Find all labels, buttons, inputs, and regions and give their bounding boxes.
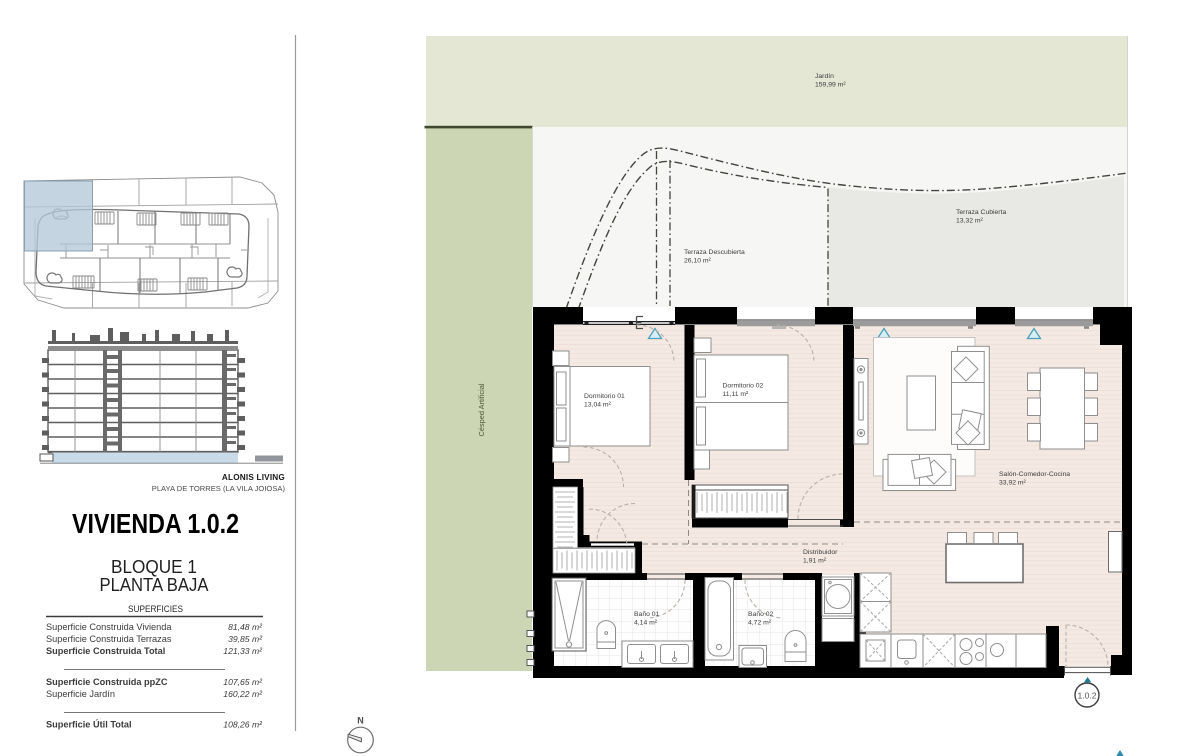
svg-text:Superficie Construida Terrazas: Superficie Construida Terrazas: [46, 634, 172, 644]
svg-text:Césped Artificial: Césped Artificial: [477, 383, 486, 436]
svg-text:26,10 m²: 26,10 m²: [684, 258, 712, 265]
svg-text:160,22 m²: 160,22 m²: [223, 689, 263, 699]
svg-text:Superficie Jardín: Superficie Jardín: [46, 689, 115, 699]
svg-text:Superficie Útil Total: Superficie Útil Total: [46, 719, 132, 730]
svg-text:Superficie Construida ppZC: Superficie Construida ppZC: [46, 677, 168, 687]
svg-text:107,65 m²: 107,65 m²: [223, 677, 263, 687]
svg-text:PLANTA BAJA: PLANTA BAJA: [100, 575, 209, 595]
svg-text:Superficie Construida Vivienda: Superficie Construida Vivienda: [46, 622, 172, 632]
svg-text:11,11 m²: 11,11 m²: [723, 391, 750, 398]
svg-text:N: N: [357, 716, 364, 726]
svg-text:13,04 m²: 13,04 m²: [584, 402, 612, 409]
svg-text:SUPERFICIES: SUPERFICIES: [128, 604, 183, 614]
svg-text:ALONIS LIVING: ALONIS LIVING: [222, 473, 285, 482]
svg-text:Jardín: Jardín: [815, 73, 834, 80]
svg-text:39,85 m²: 39,85 m²: [228, 634, 263, 644]
svg-text:4,72 m²: 4,72 m²: [748, 620, 772, 627]
svg-text:1.0.2: 1.0.2: [1077, 690, 1096, 700]
svg-text:1,91 m²: 1,91 m²: [803, 558, 827, 565]
svg-text:VIVIENDA 1.0.2: VIVIENDA 1.0.2: [72, 508, 239, 539]
svg-text:13,32 m²: 13,32 m²: [956, 218, 984, 225]
svg-text:33,92 m²: 33,92 m²: [999, 480, 1027, 487]
svg-text:Baño 01: Baño 01: [634, 611, 660, 618]
svg-text:Superficie Construida Total: Superficie Construida Total: [46, 646, 165, 656]
svg-text:Terraza Cubierta: Terraza Cubierta: [956, 209, 1006, 216]
svg-text:PLAYA DE TORRES (LA VILA JOIOS: PLAYA DE TORRES (LA VILA JOIOSA): [152, 484, 286, 493]
svg-text:108,26 m²: 108,26 m²: [223, 720, 263, 730]
svg-text:Distribuidor: Distribuidor: [803, 549, 838, 556]
svg-text:Dormitorio 02: Dormitorio 02: [723, 383, 764, 390]
svg-text:Salón-Comedor-Cocina: Salón-Comedor-Cocina: [999, 471, 1070, 478]
svg-text:Baño 02: Baño 02: [748, 611, 774, 618]
svg-text:Dormitorio 01: Dormitorio 01: [584, 393, 625, 400]
svg-text:BLOQUE 1: BLOQUE 1: [111, 557, 197, 577]
svg-text:159,99 m²: 159,99 m²: [815, 82, 846, 89]
svg-text:4,14 m²: 4,14 m²: [634, 620, 658, 627]
svg-text:Terraza Descubierta: Terraza Descubierta: [684, 249, 745, 256]
svg-text:121,33 m²: 121,33 m²: [223, 646, 263, 656]
svg-text:81,48 m²: 81,48 m²: [228, 622, 263, 632]
